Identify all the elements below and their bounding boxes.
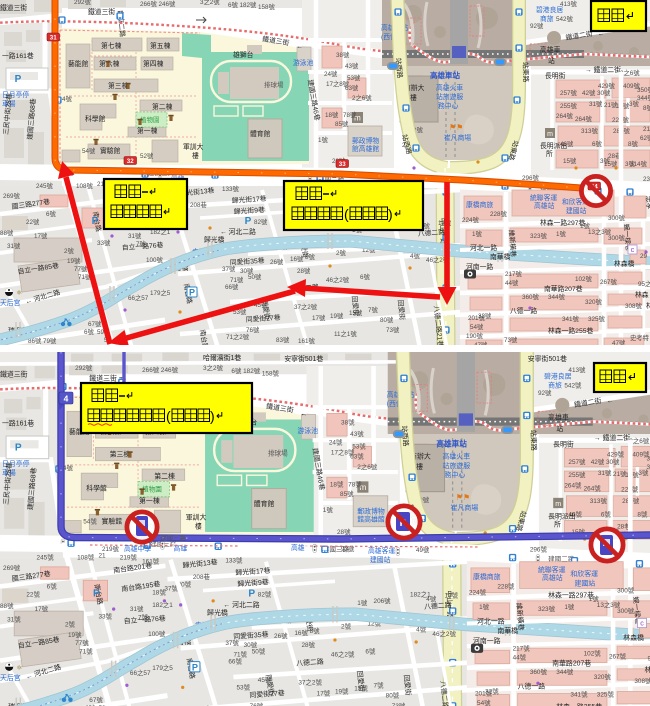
svg-text:高雄: 高雄: [291, 543, 305, 552]
svg-text:33: 33: [339, 161, 346, 168]
svg-text:高雄客運: 高雄客運: [368, 546, 395, 555]
svg-text:): ): [210, 408, 215, 424]
svg-text:): ): [388, 206, 393, 222]
svg-text:(: (: [166, 408, 171, 424]
svg-text:建國站: 建國站: [370, 555, 391, 564]
svg-text:49號: 49號: [416, 545, 430, 554]
svg-text:4: 4: [64, 394, 69, 404]
svg-text:93號: 93號: [341, 544, 355, 553]
svg-text:219號: 219號: [102, 544, 120, 553]
svg-text:31: 31: [50, 34, 57, 41]
svg-text:高雄中學: 高雄中學: [124, 544, 151, 553]
svg-text:(: (: [344, 206, 349, 222]
svg-text:32: 32: [127, 158, 134, 165]
svg-text:建國三路: 建國三路: [160, 533, 187, 542]
